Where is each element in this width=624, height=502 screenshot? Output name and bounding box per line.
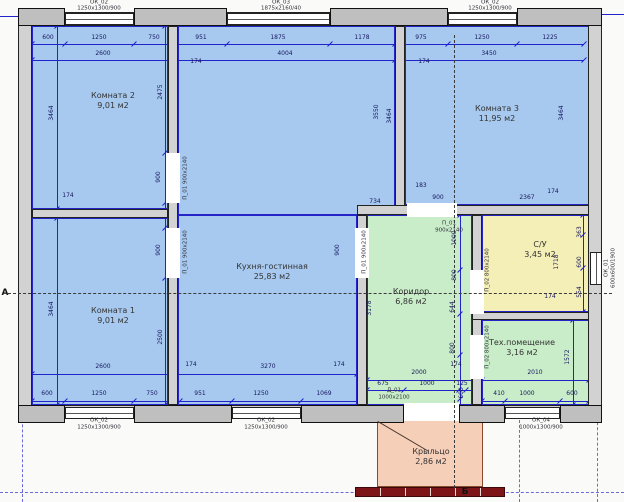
dimension-label: 2000 bbox=[411, 370, 426, 376]
opening-spec-label: 900х2140 bbox=[435, 228, 463, 234]
site-boundary-line bbox=[519, 420, 520, 502]
dimension-label: 174 bbox=[544, 294, 555, 300]
dimension-line bbox=[32, 401, 360, 402]
dimension-label: 1178 bbox=[354, 35, 369, 41]
dimension-label: 174 bbox=[185, 362, 196, 368]
dimension-label: 1000 bbox=[519, 391, 534, 397]
wall-pier bbox=[459, 405, 505, 423]
dimension-label: 1875 bbox=[270, 35, 285, 41]
wall-pier bbox=[560, 405, 602, 423]
dimension-label: 410 bbox=[493, 391, 504, 397]
dimension-label: 2500 bbox=[158, 329, 164, 344]
room-label-kuhnya-gostinnaya: Кухня-гостинная25,83 м2 bbox=[236, 262, 308, 282]
wall bbox=[32, 209, 168, 218]
door-opening bbox=[407, 203, 457, 217]
opening-spec-label: П_01 900х2140 bbox=[183, 230, 189, 273]
window bbox=[448, 13, 517, 25]
room-name: Комната 3 bbox=[475, 104, 519, 114]
dimension-label: 2600 bbox=[95, 51, 110, 57]
window-frame-line bbox=[228, 19, 329, 20]
opening-spec-label: ОК_02 bbox=[257, 418, 275, 424]
porch-step-divider bbox=[430, 488, 431, 496]
room-label-koridor: Коридор6,86 м2 bbox=[393, 287, 429, 307]
dimension-label: 951 bbox=[195, 35, 206, 41]
dimension-label: 3270 bbox=[260, 364, 275, 370]
opening-spec-label: 1250х1300/900 bbox=[468, 6, 512, 12]
dimension-label: 174 bbox=[190, 59, 201, 65]
opening-spec-label: П_02 800х2140 bbox=[485, 325, 491, 368]
opening-spec-label: П_01 900х2140 bbox=[362, 230, 368, 273]
axis-extension-line bbox=[602, 14, 624, 15]
dimension-label: 600 bbox=[41, 391, 52, 397]
wall-pier bbox=[134, 8, 227, 26]
room-area: 3,45 м2 bbox=[524, 250, 555, 260]
wall-pier bbox=[18, 405, 65, 423]
window-frame-line bbox=[506, 413, 559, 414]
window bbox=[227, 13, 330, 25]
dimension-line bbox=[32, 60, 584, 61]
dimension-label: 3178 bbox=[367, 300, 373, 315]
dimension-label: 3464 bbox=[49, 301, 55, 316]
room-area: 11,95 м2 bbox=[475, 114, 519, 124]
dimension-label: 800 bbox=[450, 342, 456, 353]
dimension-label: 800 bbox=[452, 269, 458, 280]
dimension-label: 1250 bbox=[253, 391, 268, 397]
wall bbox=[18, 12, 32, 419]
dimension-label: 174 bbox=[333, 362, 344, 368]
dimension-line bbox=[460, 215, 461, 405]
dimension-label: 900 bbox=[156, 171, 162, 182]
opening-spec-label: П_02 800х2140 bbox=[485, 248, 491, 291]
dimension-label: 1718 bbox=[554, 254, 560, 269]
door-opening bbox=[166, 228, 180, 278]
porch-step-divider bbox=[380, 488, 381, 496]
dimension-label: 174 bbox=[62, 193, 73, 199]
window-frame-line bbox=[596, 253, 597, 284]
wall-pier bbox=[18, 8, 65, 26]
opening-spec-label: 1000х2100 bbox=[378, 395, 409, 401]
room-fill-kuhnya-gostinnaya bbox=[178, 215, 357, 405]
site-boundary-line bbox=[0, 492, 624, 493]
dimension-label: 125 bbox=[456, 381, 467, 387]
room-area: 9,01 м2 bbox=[91, 101, 135, 111]
wall-pier bbox=[301, 405, 404, 423]
dimension-label: 3464 bbox=[49, 105, 55, 120]
dimension-label: 4004 bbox=[277, 51, 292, 57]
dimension-label: 3464 bbox=[559, 105, 565, 120]
section-axis-marker: Б bbox=[462, 487, 469, 497]
wall-pier bbox=[517, 8, 602, 26]
dimension-label: 1250 bbox=[91, 391, 106, 397]
dimension-label: 363 bbox=[577, 226, 583, 237]
dimension-label: 900 bbox=[335, 244, 341, 255]
dimension-label: 975 bbox=[415, 35, 426, 41]
opening-spec-label: 1250х1300/900 bbox=[77, 425, 121, 431]
dimension-line bbox=[583, 215, 584, 312]
dimension-label: 675 bbox=[377, 381, 388, 387]
dimension-label: 1069 bbox=[316, 391, 331, 397]
room-name: Комната 1 bbox=[91, 306, 135, 316]
dimension-label: 1250 bbox=[91, 35, 106, 41]
wall bbox=[168, 26, 178, 405]
room-area: 25,83 м2 bbox=[236, 272, 308, 282]
room-label-krylco: Крыльцо2,86 м2 bbox=[412, 447, 449, 467]
opening-spec-label: 1000х1300/900 bbox=[519, 425, 563, 431]
opening-spec-label: 600х600/1900 bbox=[611, 248, 617, 288]
room-area: 6,86 м2 bbox=[393, 297, 429, 307]
opening-spec-label: ОК_02 bbox=[90, 418, 108, 424]
dimension-label: 2367 bbox=[519, 195, 534, 201]
door-opening bbox=[166, 153, 180, 203]
dimension-label: 644 bbox=[450, 301, 456, 312]
plan-canvas: Комната 29,01 м2Комната 19,01 м2Кухня-го… bbox=[0, 0, 624, 502]
door-opening bbox=[404, 403, 459, 421]
opening-spec-label: 1250х1300/900 bbox=[77, 6, 121, 12]
dimension-label: 750 bbox=[146, 391, 157, 397]
room-label-komnata-1: Комната 19,01 м2 bbox=[91, 306, 135, 326]
opening-spec-label: ОК_04 bbox=[532, 418, 550, 424]
window-frame-line bbox=[66, 19, 133, 20]
dimension-label: 174 bbox=[418, 59, 429, 65]
dimension-line bbox=[32, 44, 584, 45]
window bbox=[590, 252, 602, 285]
dimension-label: 1225 bbox=[542, 35, 557, 41]
room-fill-su bbox=[482, 215, 589, 312]
room-name: Комната 2 bbox=[91, 91, 135, 101]
dimension-label: 3450 bbox=[481, 51, 496, 57]
dimension-label: 3550 bbox=[374, 104, 380, 119]
section-axis-marker: А bbox=[2, 288, 9, 298]
window-frame-line bbox=[233, 413, 300, 414]
dimension-label: 174 bbox=[547, 189, 558, 195]
opening-spec-label: 1875х2160/40 bbox=[261, 6, 301, 12]
room-name: Крыльцо bbox=[412, 447, 449, 457]
dimension-label: 2475 bbox=[158, 84, 164, 99]
section-line bbox=[8, 293, 612, 294]
room-name: Тех.помещение bbox=[489, 338, 555, 348]
wall bbox=[588, 12, 602, 419]
dimension-label: 554 bbox=[577, 286, 583, 297]
wall bbox=[472, 312, 589, 320]
dimension-label: 951 bbox=[194, 391, 205, 397]
opening-spec-label: П_01 bbox=[442, 221, 456, 227]
dimension-label: 183 bbox=[415, 183, 426, 189]
room-label-komnata-3: Комната 311,95 м2 bbox=[475, 104, 519, 124]
porch-step-divider bbox=[455, 488, 456, 496]
opening-spec-label: П_01 900х2140 bbox=[183, 156, 189, 199]
wall bbox=[357, 205, 589, 215]
section-line bbox=[454, 35, 455, 488]
porch-step-divider bbox=[480, 488, 481, 496]
room-name: Кухня-гостинная bbox=[236, 262, 308, 272]
room-area: 2,86 м2 bbox=[412, 457, 449, 467]
room-label-tehpomeschenie: Тех.помещение3,16 м2 bbox=[489, 338, 555, 358]
dimension-label: 174 bbox=[450, 362, 461, 368]
dimension-label: 2600 bbox=[95, 364, 110, 370]
window-frame-line bbox=[66, 413, 133, 414]
dimension-label: 900 bbox=[432, 195, 443, 201]
axis-extension-line bbox=[0, 16, 20, 17]
door-opening bbox=[470, 335, 484, 379]
dimension-label: 600 bbox=[577, 256, 583, 267]
wall-pier bbox=[134, 405, 232, 423]
room-name: С/У bbox=[524, 240, 555, 250]
dimension-label: 1572 bbox=[565, 349, 571, 364]
dimension-label: 900 bbox=[156, 244, 162, 255]
site-boundary-line bbox=[597, 417, 598, 502]
dimension-label: 600 bbox=[566, 391, 577, 397]
dimension-line bbox=[32, 374, 357, 375]
dimension-label: 734 bbox=[369, 199, 380, 205]
room-label-su: С/У3,45 м2 bbox=[524, 240, 555, 260]
dimension-label: 3464 bbox=[387, 108, 393, 123]
dimension-label: 2010 bbox=[527, 370, 542, 376]
floor-plan: Комната 29,01 м2Комната 19,01 м2Кухня-го… bbox=[0, 0, 624, 502]
opening-spec-label: 1250х1300/900 bbox=[244, 425, 288, 431]
dimension-label: 600 bbox=[459, 387, 465, 398]
window bbox=[65, 13, 134, 25]
door-opening bbox=[470, 270, 484, 314]
porch-step-divider bbox=[405, 488, 406, 496]
wall bbox=[395, 26, 405, 215]
opening-spec-label: ОК_01 bbox=[604, 259, 610, 277]
wall-pier bbox=[330, 8, 448, 26]
dimension-label: 600 bbox=[42, 35, 53, 41]
room-area: 9,01 м2 bbox=[91, 316, 135, 326]
room-area: 3,16 м2 bbox=[489, 348, 555, 358]
dimension-label: 750 bbox=[148, 35, 159, 41]
opening-spec-label: Д_01 bbox=[387, 388, 401, 394]
room-label-komnata-2: Комната 29,01 м2 bbox=[91, 91, 135, 111]
dimension-label: 1000 bbox=[419, 381, 434, 387]
window-frame-line bbox=[449, 19, 516, 20]
dimension-label: 1250 bbox=[474, 35, 489, 41]
room-name: Коридор bbox=[393, 287, 429, 297]
